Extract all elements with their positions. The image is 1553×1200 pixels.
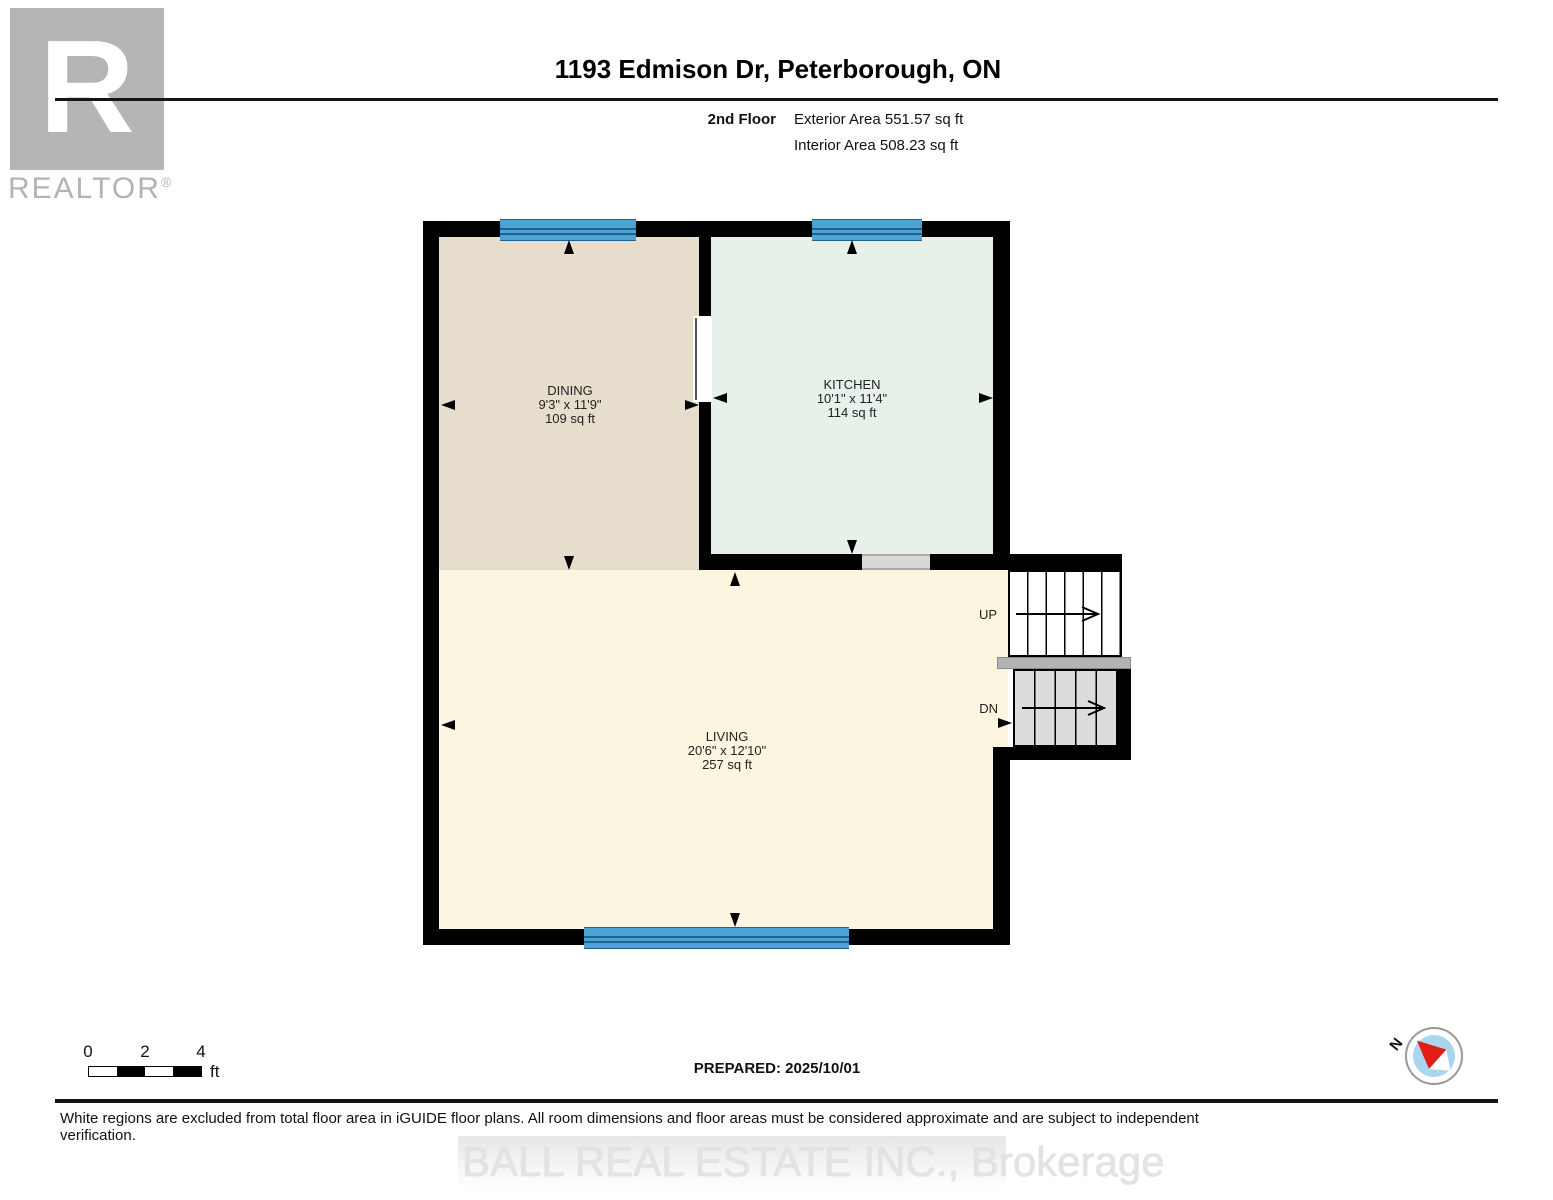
scale-segment [173, 1067, 201, 1076]
window-kitchen [812, 219, 922, 241]
living-dimensions: 20'6" x 12'10" [627, 744, 827, 758]
scale-tick-4: 4 [186, 1042, 216, 1062]
wall-dining-kitchen-divider-upper [699, 237, 711, 318]
wall-stairwell-right [1117, 666, 1131, 760]
door-opening-kitchen [862, 554, 930, 570]
scale-bar [88, 1066, 202, 1077]
window-dining [500, 219, 636, 241]
wall-right-upper-exterior [993, 221, 1010, 570]
dim-arrow-kitchen-down [847, 540, 857, 554]
window-living [584, 927, 849, 949]
stairs-down-direction-arrow-icon [1022, 700, 1118, 716]
floor-plan: UP DN DINING 9'3" x 11'9" 109 sq ft KITC… [0, 0, 1553, 1000]
floor-plan-page: R REALTOR® 1193 Edmison Dr, Peterborough… [0, 0, 1553, 1200]
scale-segment [89, 1067, 117, 1076]
footer-divider [55, 1099, 1498, 1103]
dining-name: DINING [470, 384, 670, 398]
kitchen-label: KITCHEN 10'1" x 11'4" 114 sq ft [752, 378, 952, 420]
wall-dining-kitchen-divider-lower [699, 400, 711, 554]
brokerage-watermark: BALL REAL ESTATE INC., Brokerage [462, 1138, 1007, 1186]
dim-arrow-dining-left [441, 400, 455, 410]
header-divider [55, 98, 1498, 101]
kitchen-area: 114 sq ft [752, 406, 952, 420]
scale-unit-label: ft [210, 1062, 219, 1082]
wall-right-lower-exterior [993, 747, 1010, 945]
dining-label: DINING 9'3" x 11'9" 109 sq ft [470, 384, 670, 426]
kitchen-name: KITCHEN [752, 378, 952, 392]
stair-landing-divider [997, 657, 1131, 669]
dim-arrow-living-down [730, 913, 740, 927]
dim-arrow-kitchen-left [713, 393, 727, 403]
scale-segment [145, 1067, 173, 1076]
compass-icon [1396, 1018, 1472, 1094]
dim-arrow-dining-down [564, 556, 574, 570]
dim-arrow-living-up [730, 572, 740, 586]
realtor-brand-text: REALTOR [8, 172, 161, 205]
dim-arrow-living-right [998, 718, 1012, 728]
prepared-date: PREPARED: 2025/10/01 [600, 1060, 954, 1077]
dim-arrow-kitchen-up [847, 240, 857, 254]
stairs-up-direction-arrow-icon [1016, 606, 1112, 622]
scale-tick-0: 0 [73, 1042, 103, 1062]
dining-area: 109 sq ft [470, 412, 670, 426]
realtor-logo-text: REALTOR® [8, 172, 186, 206]
living-name: LIVING [627, 730, 827, 744]
scale-segment [117, 1067, 145, 1076]
realtor-logo-mark: R [10, 8, 164, 170]
door-leaf-line [695, 318, 697, 400]
dining-dimensions: 9'3" x 11'9" [470, 398, 670, 412]
registered-trademark-symbol: ® [161, 174, 173, 190]
living-area: 257 sq ft [627, 758, 827, 772]
kitchen-dimensions: 10'1" x 11'4" [752, 392, 952, 406]
wall-stairwell-bottom [1003, 747, 1131, 760]
dim-arrow-living-left [441, 720, 455, 730]
dim-arrow-dining-right [685, 400, 699, 410]
stairs-down-label: DN [958, 701, 998, 716]
dim-arrow-kitchen-right [979, 393, 993, 403]
living-label: LIVING 20'6" x 12'10" 257 sq ft [627, 730, 827, 772]
wall-left-exterior [423, 221, 439, 945]
stairs-up-label: UP [957, 607, 997, 622]
realtor-logo-letter: R [10, 8, 164, 166]
dim-arrow-dining-up [564, 240, 574, 254]
scale-tick-2: 2 [130, 1042, 160, 1062]
